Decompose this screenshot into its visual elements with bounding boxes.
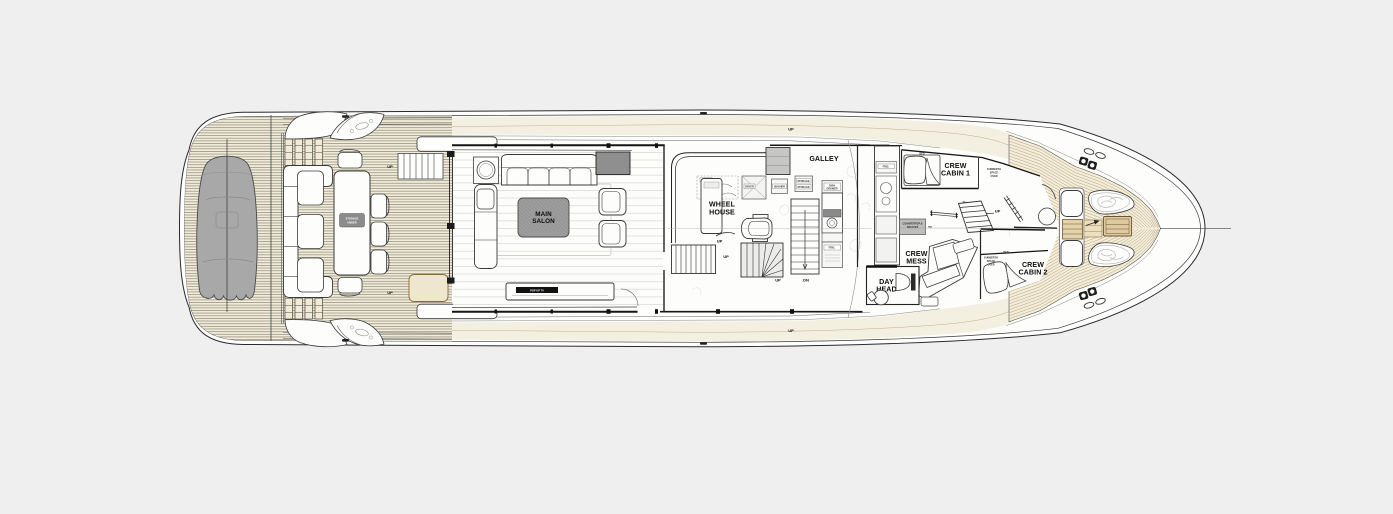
svg-text:FRIG.: FRIG. [883,166,890,169]
svg-text:UP: UP [995,209,1001,214]
svg-text:CABIN 1: CABIN 1 [941,170,970,178]
svg-text:UP: UP [775,278,781,283]
svg-text:UP: UP [788,328,794,333]
svg-text:UP: UP [387,164,393,169]
svg-text:GALLEY: GALLEY [809,155,839,163]
svg-text:FRIG.: FRIG. [829,247,836,250]
svg-text:MESS: MESS [906,258,927,266]
svg-text:BED: BED [919,153,924,156]
svg-text:OVER: OVER [987,264,994,267]
svg-text:DRAWER: DRAWER [826,188,837,191]
svg-text:DN: DN [803,278,809,283]
svg-text:SALON: SALON [532,218,555,225]
svg-text:SHELVES: SHELVES [907,226,919,229]
svg-text:OVER: OVER [990,175,997,178]
svg-text:STORAGE: STORAGE [346,217,359,221]
svg-text:CABIN 2: CABIN 2 [1018,269,1047,277]
svg-text:WASHER: WASHER [774,186,785,189]
svg-text:UNDER: UNDER [347,221,356,225]
svg-text:UP: UP [717,239,723,244]
svg-text:STORAGE: STORAGE [797,180,810,183]
svg-text:UP: UP [788,127,794,132]
svg-text:BED: BED [1003,251,1008,254]
svg-text:DRYER: DRYER [745,186,754,189]
svg-text:HOUSE: HOUSE [709,209,735,217]
svg-text:WHEEL: WHEEL [709,201,736,209]
svg-text:UP: UP [723,254,729,259]
svg-text:TV: TV [928,225,932,229]
svg-text:MAIN: MAIN [535,211,552,218]
svg-text:STORAGE: STORAGE [797,186,810,189]
svg-text:POP UP TV: POP UP TV [530,289,544,293]
svg-text:UP: UP [387,290,393,295]
